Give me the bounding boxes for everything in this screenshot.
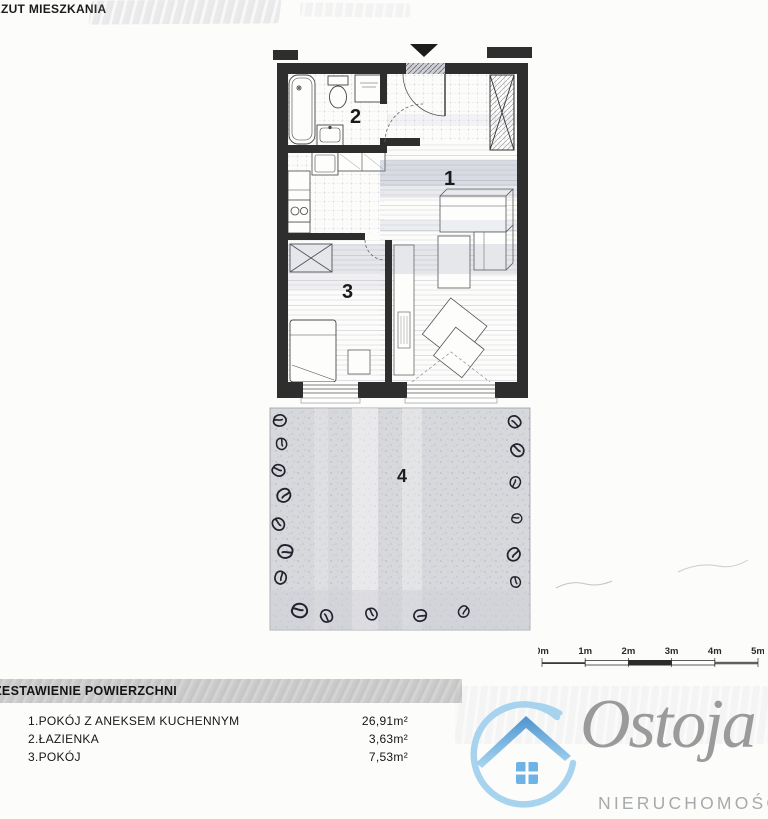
roof-shape [476, 716, 571, 768]
scale-bar-segments [542, 658, 758, 667]
scale-bar: 0m 1m 2m 3m 4m 5m [538, 642, 764, 672]
nightstand [348, 350, 370, 374]
areas-heading: ZESTAWIENIE POWIERZCHNI [0, 684, 177, 698]
bathroom-sink [317, 125, 343, 146]
wall-stub-right [487, 47, 532, 58]
room-label-4: 4 [397, 466, 407, 486]
area-name: 2.ŁAZIENKA [28, 732, 99, 746]
room-label-2: 2 [350, 106, 361, 128]
washing-machine [355, 75, 383, 102]
toilet [328, 76, 348, 108]
kitchen-cabinets [338, 152, 385, 171]
house-window [516, 762, 538, 784]
area-row: 3.POKÓJ 7,53m² [0, 750, 420, 765]
window-bedroom [301, 382, 360, 403]
wall-stub-left [273, 50, 298, 60]
scale-label: 2m [622, 646, 636, 657]
logo-name: Ostoja [580, 690, 755, 760]
bathtub [289, 75, 315, 144]
scale-label: 5m [751, 646, 764, 657]
area-name: 3.POKÓJ [28, 750, 81, 764]
scan-squiggle-artifacts [538, 550, 768, 610]
entrance-arrow-icon [410, 44, 438, 57]
bed [290, 320, 336, 382]
area-value: 7,53m² [330, 750, 408, 764]
scale-label: 3m [665, 646, 679, 657]
scanned-floor-plan-page: RZUT MIESZKANIA [0, 0, 768, 819]
scale-label: 0m [538, 646, 549, 657]
room-label-1: 1 [444, 168, 455, 190]
stove [288, 200, 310, 222]
window-living [405, 382, 497, 403]
area-row: 1.POKÓJ Z ANEKSEM KUCHENNYM 26,91m² [0, 714, 420, 729]
floor-plan-drawing: 4 [252, 30, 542, 650]
scale-label: 4m [708, 646, 722, 657]
area-row: 2.ŁAZIENKA 3,63m² [0, 732, 420, 747]
area-value: 26,91m² [330, 714, 408, 728]
floor-plan: 4 [252, 30, 542, 650]
terrace: 4 [270, 408, 530, 630]
room-label-3: 3 [342, 281, 353, 303]
house-logo-icon [464, 700, 588, 818]
scan-noise-smudge [300, 2, 410, 17]
wardrobe-entry [490, 75, 514, 150]
logo-subtitle: NIERUCHOMOŚCI [598, 793, 768, 814]
scale-label: 1m [578, 646, 592, 657]
area-value: 3,63m² [330, 732, 408, 746]
area-name: 1.POKÓJ Z ANEKSEM KUCHENNYM [28, 714, 239, 728]
scan-noise-smudge [88, 0, 281, 25]
